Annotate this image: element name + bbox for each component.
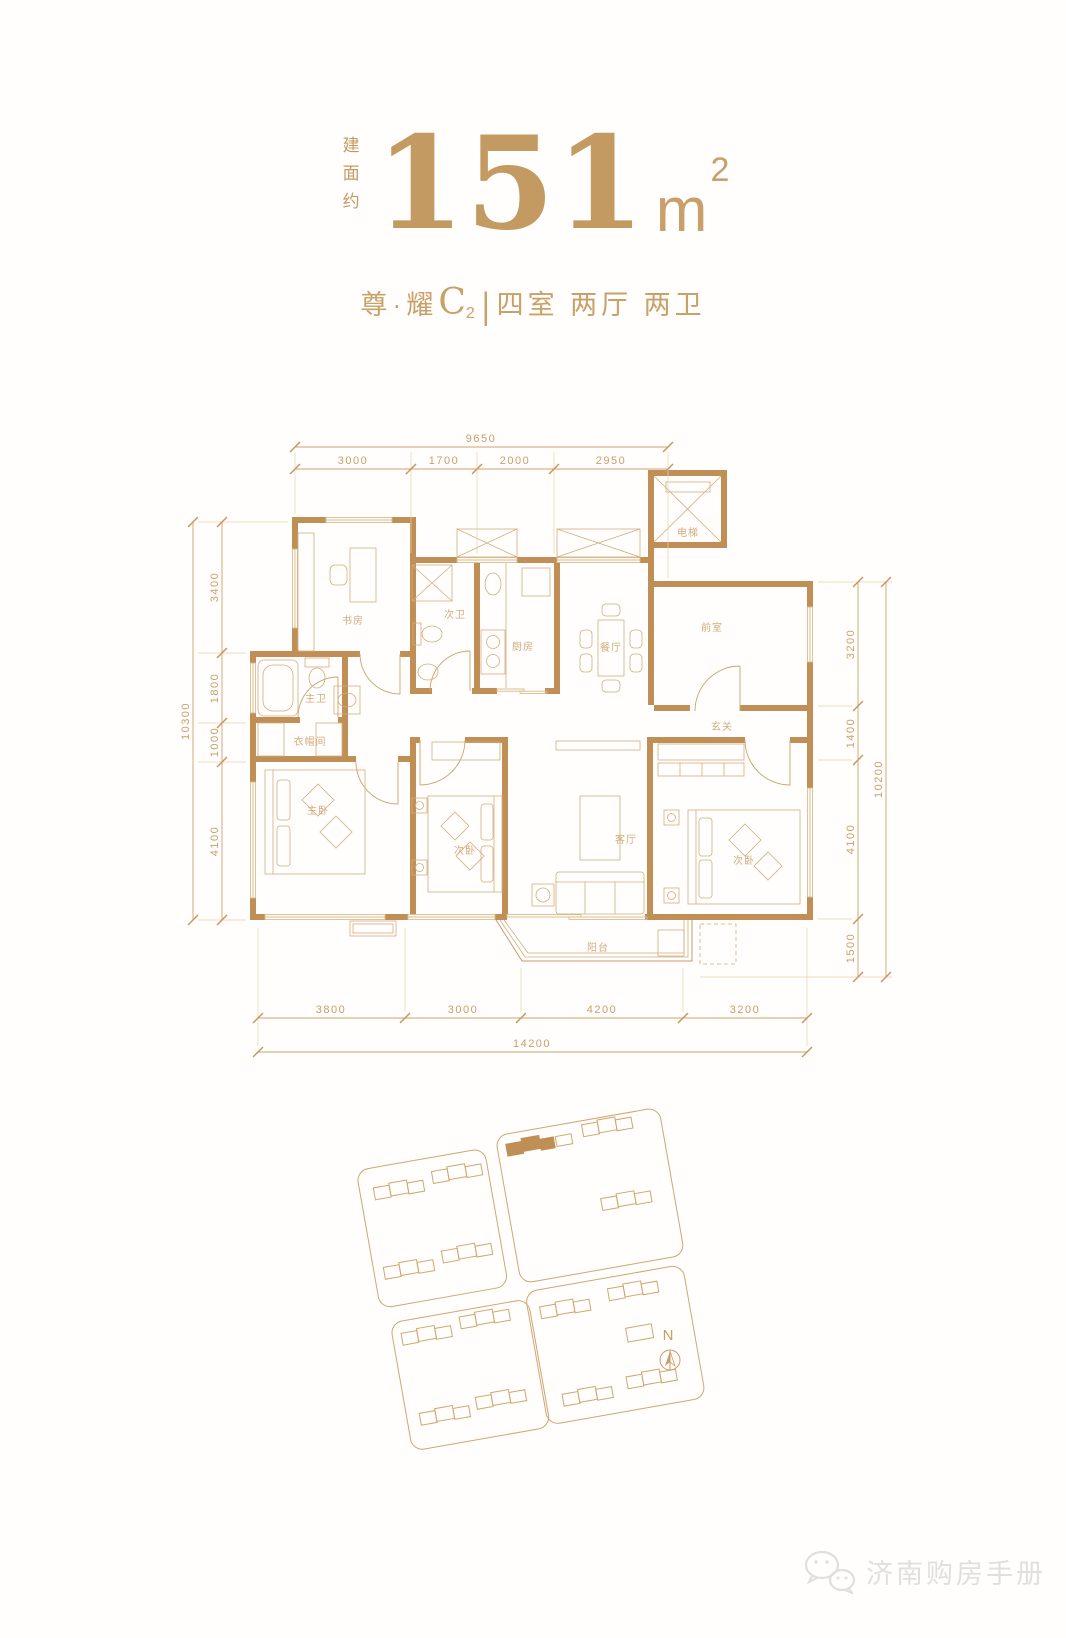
dimension-layer: 9650 3000 1700 2000 2950 10300 3400 1800… <box>180 433 892 1057</box>
window-layer <box>251 518 813 920</box>
dim-bottom-3: 4200 <box>587 1004 617 1016</box>
balcony-outline <box>350 920 736 964</box>
dim-right-3: 4100 <box>845 824 857 854</box>
dim-right-1: 3200 <box>845 629 857 659</box>
room-label-balcony: 阳台 <box>587 941 609 954</box>
dim-left-2: 1800 <box>209 673 221 703</box>
dim-bottom-4: 3200 <box>730 1004 760 1016</box>
ac-platform <box>457 529 517 557</box>
bedroom3-furniture <box>658 744 800 904</box>
highlighted-building <box>505 1133 555 1156</box>
room-label-closet: 衣帽间 <box>294 735 327 748</box>
room-label-front-room: 前室 <box>701 621 723 634</box>
dim-left-total: 10300 <box>180 702 192 740</box>
room-label-bed3: 次卧 <box>733 854 755 867</box>
site-plan: N <box>354 1107 710 1452</box>
bath2-fixtures <box>412 565 452 680</box>
dim-right-total: 10200 <box>873 760 885 798</box>
ac-platform <box>557 529 640 557</box>
dim-right-2: 1400 <box>845 718 857 748</box>
room-label-study: 书房 <box>342 614 364 627</box>
wall-layer <box>250 470 813 920</box>
master-bed <box>265 770 365 874</box>
dim-left-3: 1000 <box>209 727 221 757</box>
dim-bottom-total: 14200 <box>513 1038 551 1050</box>
compass-north-label: N <box>663 1327 674 1344</box>
room-label-dining: 餐厅 <box>600 641 622 654</box>
room-label-master-bath: 主卫 <box>305 693 327 705</box>
floorplan-page: 建面约 151 m2 尊·耀C2|四室 两厅 两卫 <box>0 0 1066 1638</box>
dim-bottom-2: 3000 <box>448 1004 478 1016</box>
dim-top-total: 9650 <box>466 433 496 445</box>
watermark: 济南购房手册 <box>802 1548 1046 1594</box>
room-label-living: 客厅 <box>615 833 637 846</box>
room-label-foyer: 玄关 <box>711 720 733 733</box>
dim-left-1: 3400 <box>209 572 221 602</box>
dim-right-4: 1500 <box>845 933 857 963</box>
living-furniture <box>532 741 644 914</box>
dim-left-4: 4100 <box>209 826 221 856</box>
room-label-bed2: 次卧 <box>454 844 476 857</box>
compass: N <box>660 1327 680 1370</box>
room-label-elevator: 电梯 <box>677 526 699 539</box>
floor-plan-canvas: 9650 3000 1700 2000 2950 10300 3400 1800… <box>0 0 1066 1638</box>
room-label-master-bed: 主卧 <box>307 804 329 817</box>
dim-top-4: 2950 <box>596 455 626 467</box>
room-label-kitchen: 厨房 <box>512 640 534 653</box>
dim-top-2: 1700 <box>429 455 459 467</box>
dim-bottom-1: 3800 <box>316 1004 346 1016</box>
room-label-bath2: 次卫 <box>444 608 466 621</box>
study-furniture <box>298 533 376 651</box>
wechat-icon <box>802 1548 858 1594</box>
kitchen-fixtures <box>481 563 550 688</box>
watermark-text: 济南购房手册 <box>866 1552 1046 1591</box>
dim-top-1: 3000 <box>338 455 368 467</box>
bedroom2-furniture <box>412 742 502 892</box>
dim-top-3: 2000 <box>500 455 530 467</box>
